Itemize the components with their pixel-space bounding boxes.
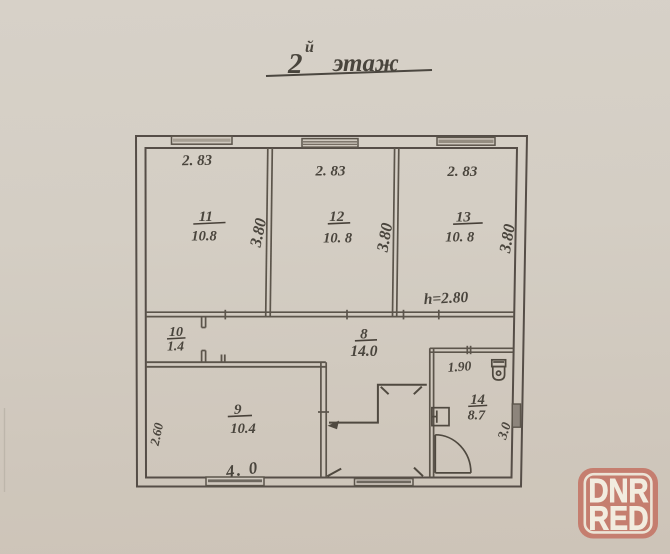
svg-text:2.60: 2.60 <box>147 421 167 448</box>
svg-text:RED: RED <box>589 500 649 537</box>
svg-text:10.8: 10.8 <box>191 229 217 245</box>
svg-text:h=2.80: h=2.80 <box>423 289 469 308</box>
svg-text:10. 8: 10. 8 <box>445 230 475 246</box>
svg-text:14.0: 14.0 <box>350 343 377 360</box>
svg-text:2. 83: 2. 83 <box>446 164 478 180</box>
svg-text:й: й <box>305 39 314 56</box>
svg-text:1.4: 1.4 <box>167 339 184 354</box>
svg-text:2. 83: 2. 83 <box>181 153 213 170</box>
svg-text:2. 83: 2. 83 <box>315 164 347 180</box>
svg-text:10. 8: 10. 8 <box>323 231 353 247</box>
svg-text:10.4: 10.4 <box>230 421 255 437</box>
svg-text:1.90: 1.90 <box>447 358 472 375</box>
svg-text:3.0: 3.0 <box>494 420 514 442</box>
svg-text:8.7: 8.7 <box>468 408 487 423</box>
